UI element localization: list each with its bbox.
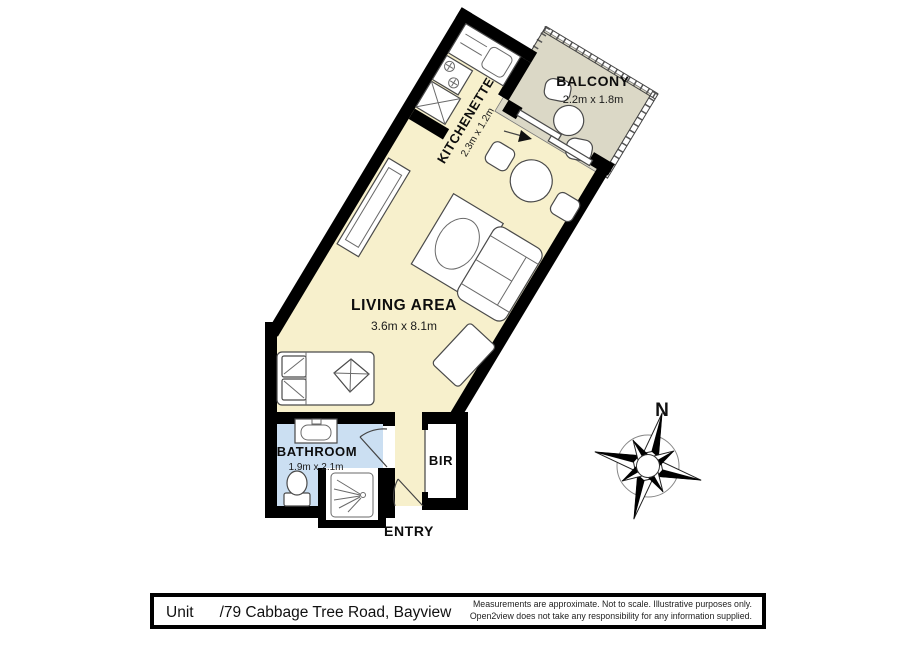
balcony-label: BALCONY [556,73,629,89]
compass-rose: N [581,399,716,534]
living-label: LIVING AREA [351,297,457,314]
wall-bir-right [456,412,468,510]
disclaimer-line2: Open2view does not take any responsibili… [470,611,752,621]
floorplan-svg: KITCHENETTE 2.3m x 1.2m BALCONY 2.2m x 1… [0,0,919,650]
north-label: N [655,400,669,421]
wall-bathroom-right-upper [383,412,395,426]
shower-base [326,468,378,520]
footer-bar: Unit/79 Cabbage Tree Road, Bayview Measu… [152,595,764,627]
address-street: /79 Cabbage Tree Road, Bayview [220,604,453,621]
compass-star [581,399,716,534]
address-prefix: Unit [166,604,194,621]
bathroom-label: BATHROOM [277,444,357,459]
bir-stub-top [422,424,428,430]
bir-label: BIR [429,453,453,468]
entry-label: ENTRY [384,523,434,539]
living-dim: 3.6m x 8.1m [371,319,437,333]
disclaimer-line1: Measurements are approximate. Not to sca… [473,599,752,609]
balcony-dim: 2.2m x 1.8m [563,94,624,106]
toilet-bowl [287,471,307,495]
bir-stub-bottom [422,492,428,498]
floorplan-page: KITCHENETTE 2.3m x 1.2m BALCONY 2.2m x 1… [0,0,919,650]
wall-bir-bottom [422,498,468,510]
bathroom-dim: 1.9m x 2.1m [288,462,343,473]
